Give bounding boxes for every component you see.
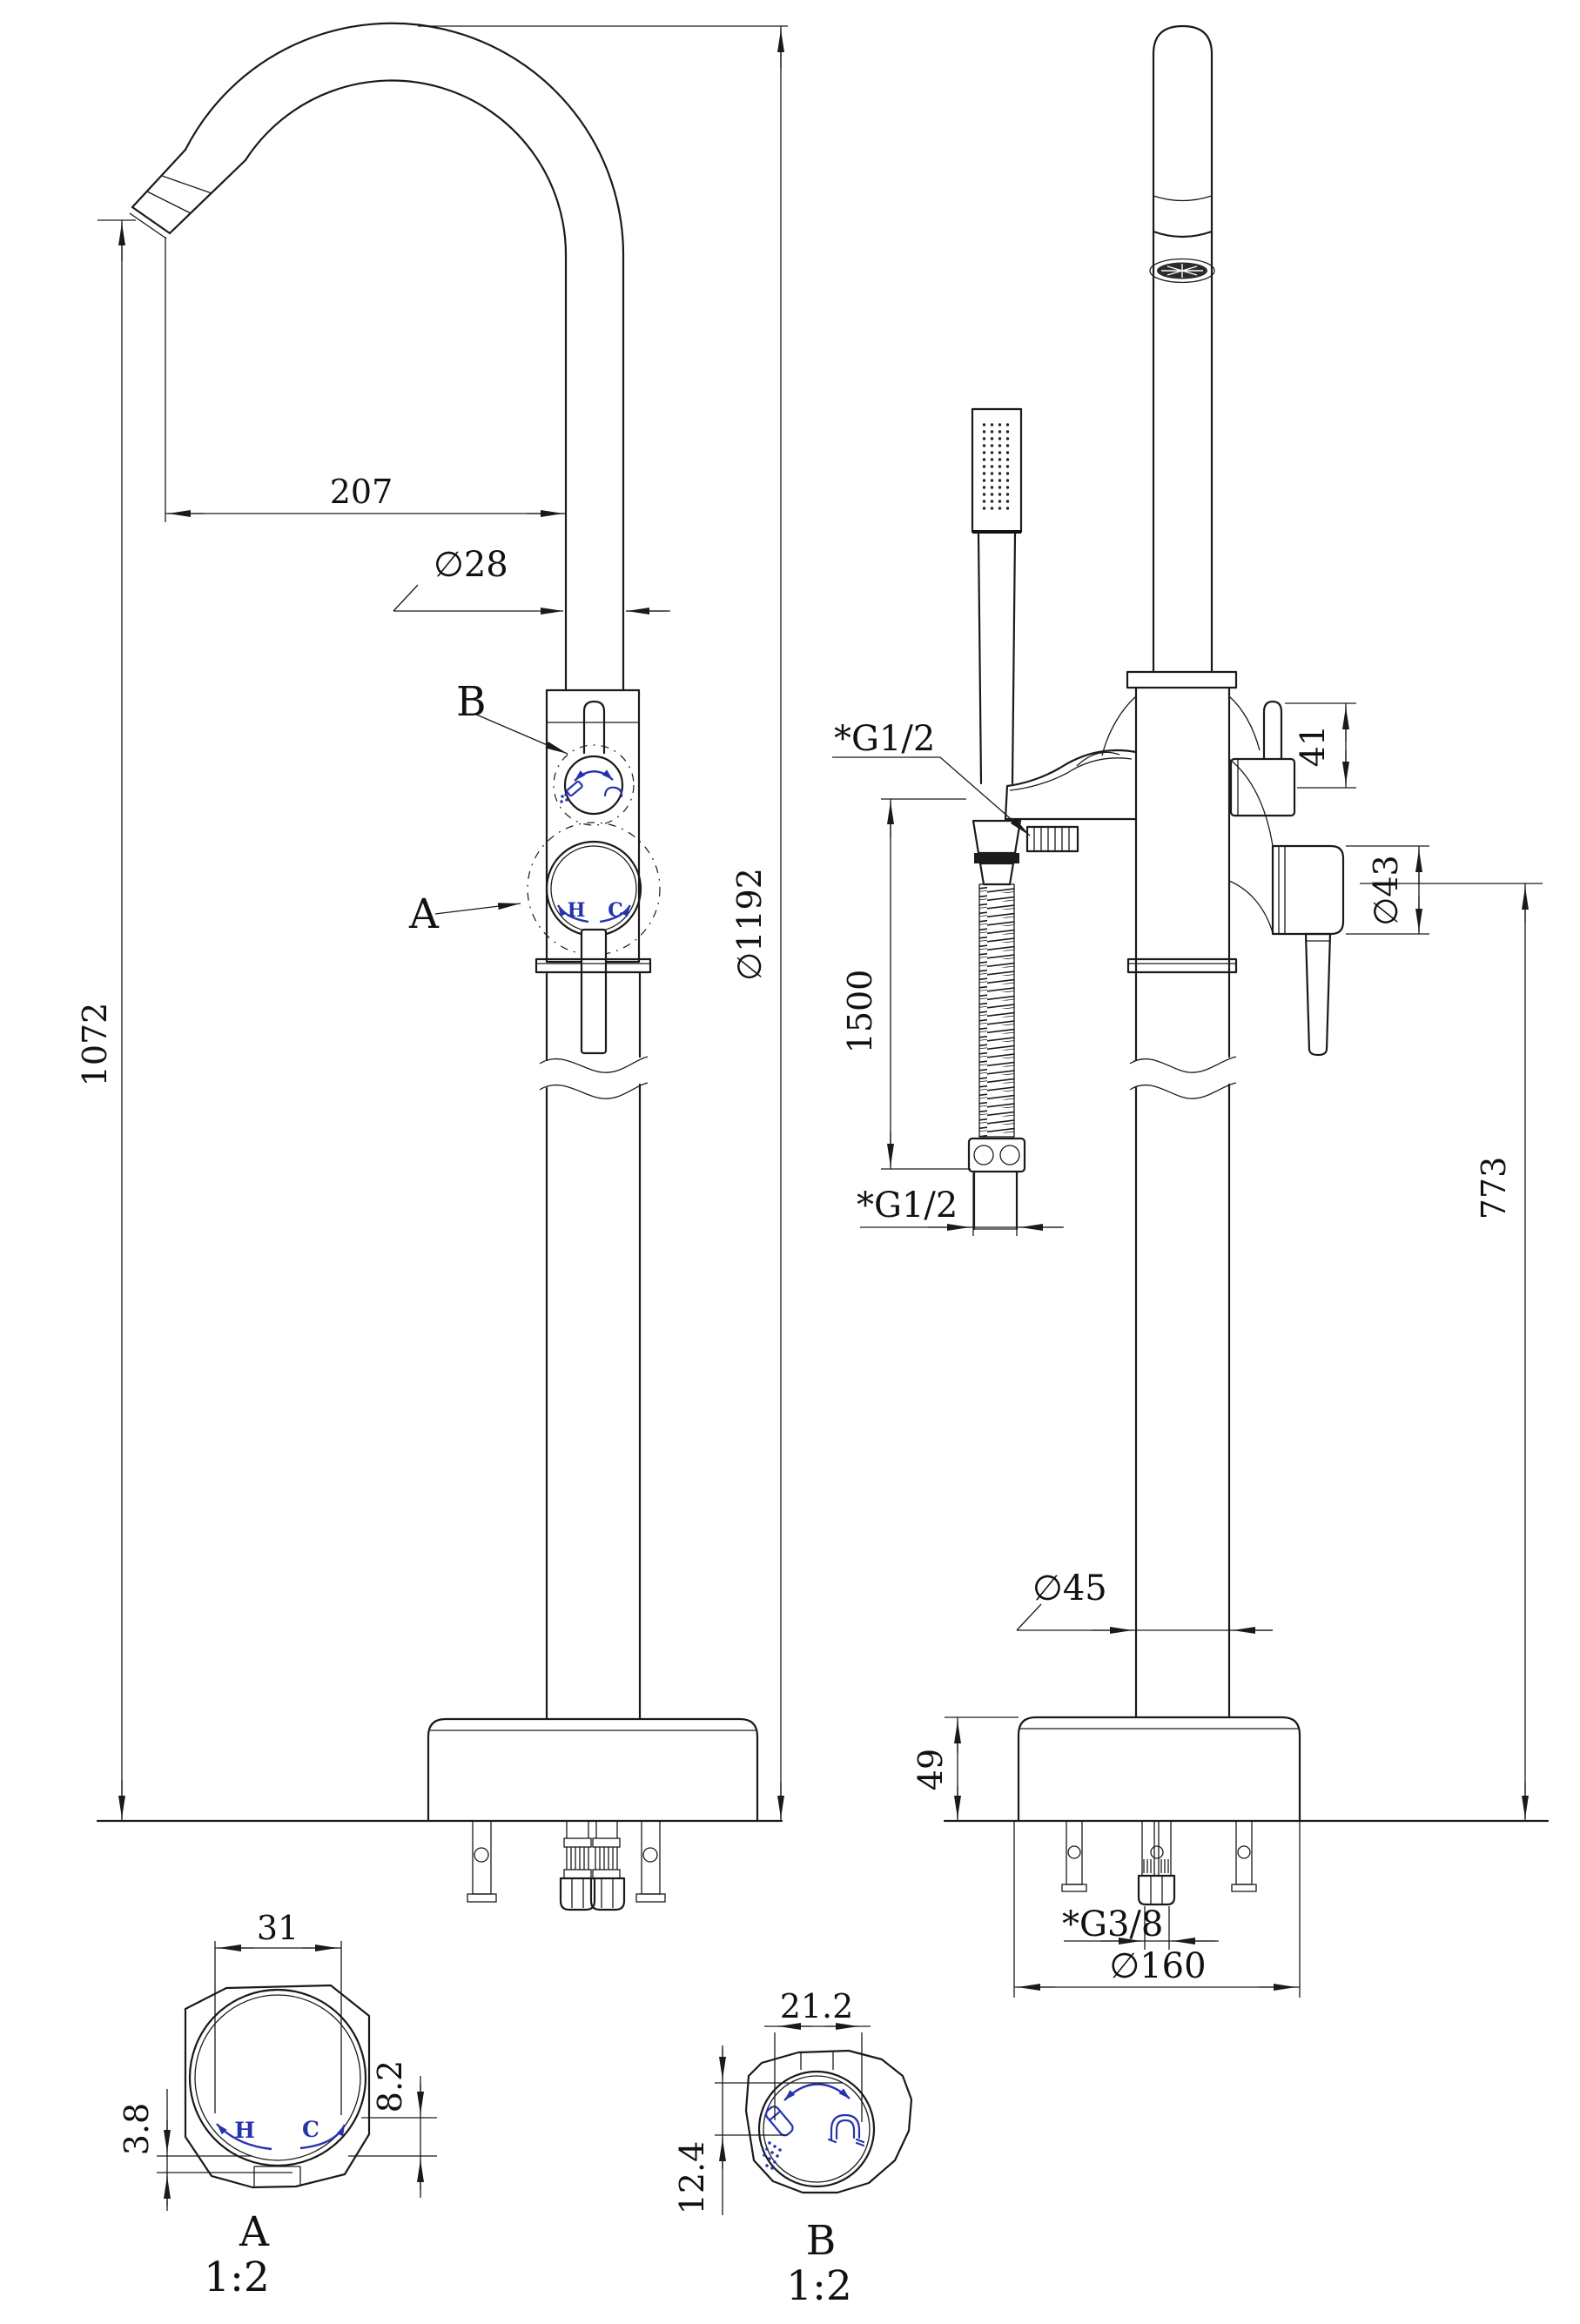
thread-g38: *G3/8 — [1062, 1904, 1163, 1945]
dim-49: 49 — [911, 1749, 950, 1790]
detail-a-cold: C — [302, 2117, 319, 2142]
front-view: H C — [76, 24, 788, 1910]
handshower-wand — [972, 409, 1021, 783]
dim-d28: ∅28 — [434, 545, 508, 585]
side-handle — [1229, 759, 1343, 1055]
gooseneck-spout — [130, 24, 623, 690]
dim-d43: ∅43 — [1367, 855, 1405, 925]
drawing-sheet: H C — [0, 0, 1580, 2321]
side-diverter-knob — [1231, 702, 1294, 816]
detail-a-dim-38: 3.8 — [118, 2103, 156, 2155]
side-fixings — [1062, 1821, 1256, 1904]
front-column — [540, 972, 648, 1719]
detail-a-dim-31: 31 — [257, 1909, 299, 1947]
side-view: *G1/2 1500 *G1/2 41 — [832, 26, 1548, 1998]
detail-a-dim-82: 8.2 — [371, 2060, 409, 2112]
thread-g12-top: *G1/2 — [834, 719, 935, 759]
side-spout-tube — [1150, 26, 1214, 672]
dim-d160: ∅160 — [1109, 1946, 1206, 1986]
dim-1072: 1072 — [76, 1003, 114, 1087]
callout-a: A — [408, 890, 440, 938]
detail-b-label: B — [806, 2217, 837, 2265]
callout-b: B — [456, 678, 487, 726]
dim-41: 41 — [1294, 725, 1332, 767]
front-base — [428, 1719, 757, 1821]
detail-b-dim-212: 21.2 — [780, 1987, 854, 2025]
dim-d45: ∅45 — [1032, 1568, 1107, 1609]
side-dimensions: *G1/2 1500 *G1/2 41 — [832, 703, 1543, 1998]
side-base — [1019, 1717, 1300, 1821]
dim-207: 207 — [330, 473, 393, 511]
front-fixings — [467, 1821, 665, 1910]
dim-773: 773 — [1475, 1157, 1513, 1220]
detail-a-label: A — [239, 2208, 270, 2256]
detail-b-scale: 1:2 — [786, 2262, 852, 2310]
side-collar — [1128, 959, 1236, 972]
detail-b-dim-124: 12.4 — [673, 2141, 711, 2215]
detail-b: 21.2 12.4 B 1:2 — [673, 1987, 911, 2310]
thread-g12-bottom: *G1/2 — [857, 1186, 958, 1226]
detail-a: H C 31 3.8 8.2 A 1:2 — [118, 1909, 437, 2301]
faucet-technical-drawing: H C — [0, 0, 1580, 2321]
detail-b-icons — [763, 2084, 864, 2169]
spout-nozzle — [130, 150, 245, 238]
shower-holder-arm — [973, 750, 1136, 884]
detail-a-scale: 1:2 — [204, 2253, 270, 2301]
front-dimensions: 1072 207 ∅28 ∅1192 B A — [76, 26, 788, 1821]
dim-d1192: ∅1192 — [730, 868, 769, 981]
side-column — [1102, 672, 1260, 1717]
hot-cold-icons: H C — [558, 899, 630, 922]
dim-1500: 1500 — [841, 970, 879, 1054]
